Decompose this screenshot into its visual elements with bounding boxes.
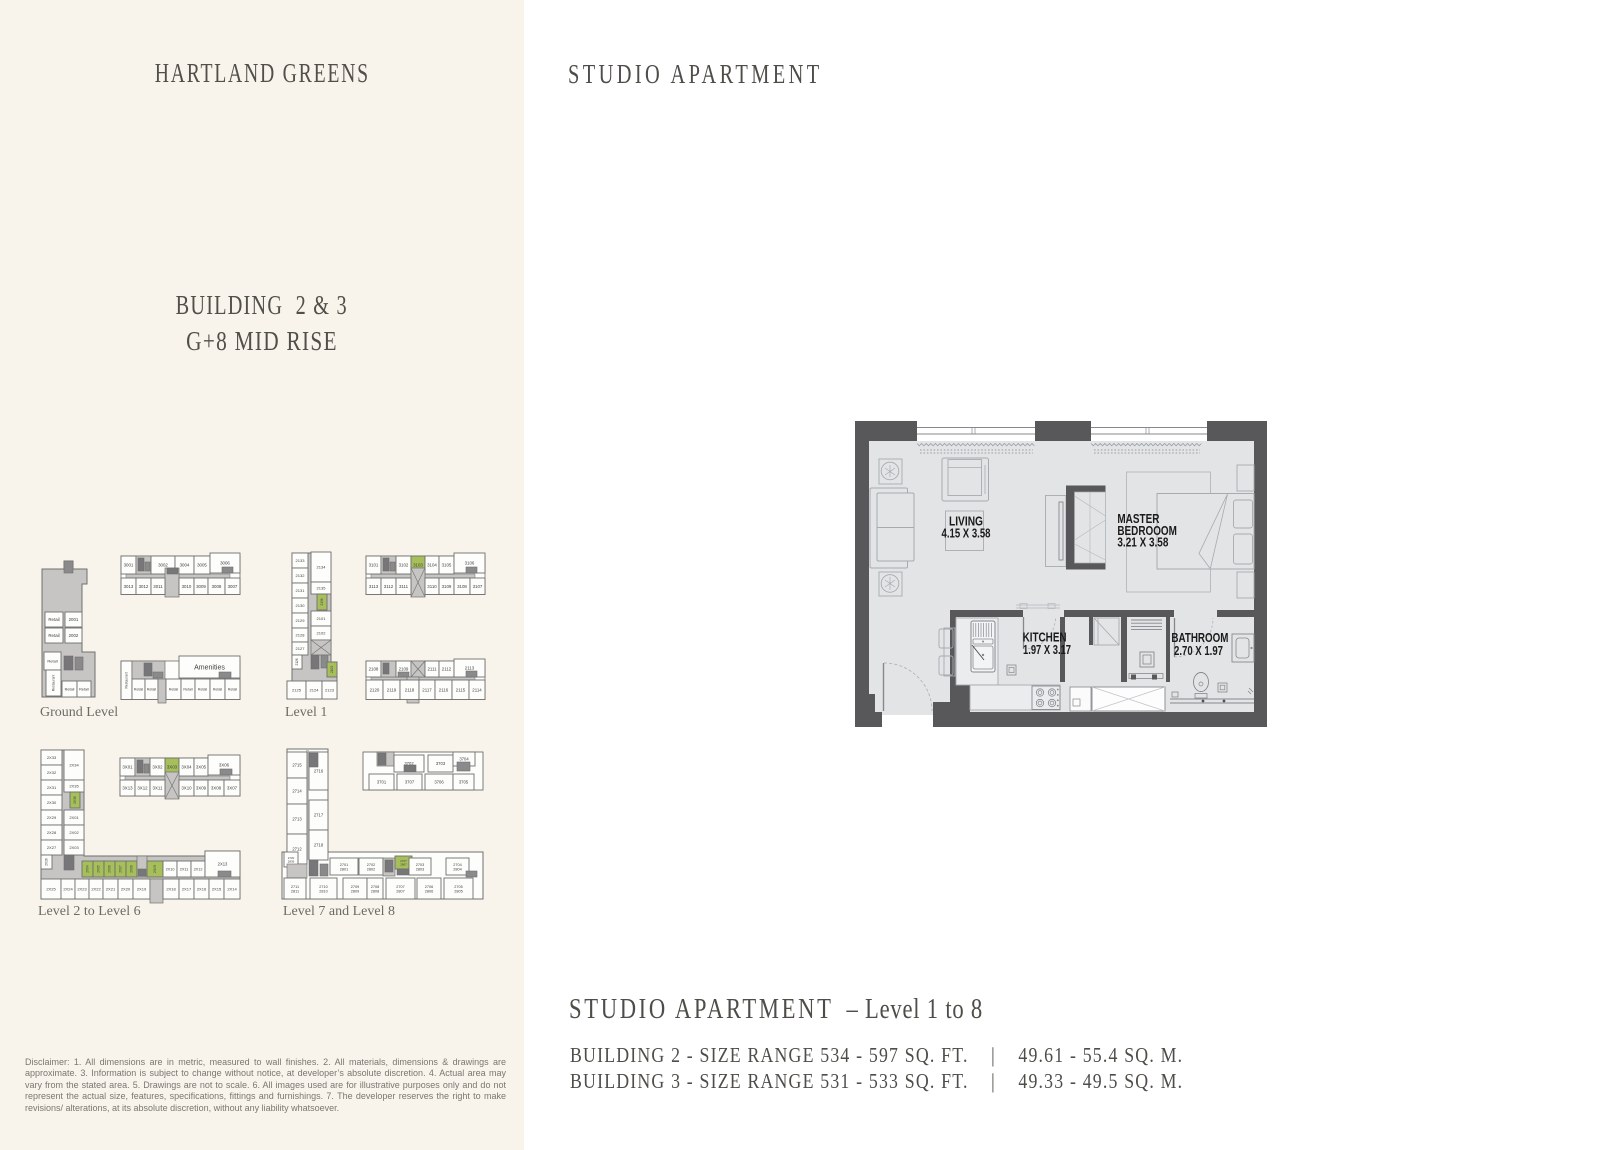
svg-text:2125: 2125 bbox=[292, 687, 302, 692]
svg-text:2120: 2120 bbox=[370, 687, 380, 692]
svg-text:2X36: 2X36 bbox=[73, 796, 77, 804]
svg-text:2X21: 2X21 bbox=[106, 886, 116, 891]
svg-text:2804: 2804 bbox=[453, 867, 461, 871]
svg-text:Retail: Retail bbox=[48, 633, 59, 638]
svg-text:Retail: Retail bbox=[47, 658, 57, 663]
svg-text:3703: 3703 bbox=[436, 761, 446, 766]
svg-text:3113: 3113 bbox=[369, 584, 379, 589]
svg-text:3010: 3010 bbox=[182, 584, 192, 589]
svg-text:2X04: 2X04 bbox=[85, 865, 89, 873]
svg-text:2711: 2711 bbox=[291, 885, 299, 889]
svg-text:Level 7 and Level 8: Level 7 and Level 8 bbox=[283, 904, 395, 919]
svg-text:2X33: 2X33 bbox=[47, 755, 57, 760]
svg-text:2803: 2803 bbox=[416, 867, 424, 871]
svg-text:3007: 3007 bbox=[228, 584, 238, 589]
svg-text:2112: 2112 bbox=[442, 667, 452, 672]
svg-text:Retail: Retail bbox=[147, 688, 156, 692]
svg-text:2X10: 2X10 bbox=[166, 867, 175, 871]
svg-text:2X31: 2X31 bbox=[47, 785, 57, 790]
svg-text:2102: 2102 bbox=[317, 630, 327, 635]
svg-text:3707: 3707 bbox=[405, 780, 415, 785]
svg-text:3X08: 3X08 bbox=[211, 786, 222, 791]
svg-text:2810: 2810 bbox=[319, 889, 327, 893]
svg-text:3103: 3103 bbox=[413, 563, 423, 568]
svg-text:2X29: 2X29 bbox=[47, 815, 57, 820]
svg-text:Ground Level: Ground Level bbox=[40, 705, 118, 720]
svg-text:Restaurant: Restaurant bbox=[124, 672, 128, 689]
svg-text:2X01: 2X01 bbox=[69, 815, 79, 820]
svg-text:2128: 2128 bbox=[296, 632, 306, 637]
svg-text:4.15 X 3.58: 4.15 X 3.58 bbox=[942, 526, 991, 541]
svg-text:2X35: 2X35 bbox=[69, 783, 79, 788]
svg-text:2X12: 2X12 bbox=[194, 867, 203, 871]
svg-text:2101: 2101 bbox=[317, 616, 327, 621]
svg-text:2111: 2111 bbox=[427, 667, 437, 672]
svg-text:2X15: 2X15 bbox=[212, 886, 222, 891]
svg-text:3X09: 3X09 bbox=[196, 786, 207, 791]
svg-text:3005: 3005 bbox=[197, 563, 207, 568]
svg-text:2836: 2836 bbox=[288, 859, 295, 863]
svg-text:2130: 2130 bbox=[296, 603, 306, 608]
svg-text:2716: 2716 bbox=[314, 769, 324, 774]
svg-text:2806: 2806 bbox=[425, 889, 433, 893]
svg-text:2116: 2116 bbox=[439, 687, 449, 692]
svg-text:2X34: 2X34 bbox=[69, 762, 79, 767]
svg-text:3X06: 3X06 bbox=[219, 763, 230, 768]
svg-text:2708: 2708 bbox=[371, 885, 379, 889]
svg-text:3X03: 3X03 bbox=[167, 765, 178, 770]
svg-text:2807: 2807 bbox=[400, 862, 407, 866]
svg-text:3001: 3001 bbox=[124, 563, 134, 568]
svg-text:3701: 3701 bbox=[377, 780, 387, 785]
svg-text:2114: 2114 bbox=[472, 687, 482, 692]
svg-text:3X10: 3X10 bbox=[181, 786, 192, 791]
svg-text:2X14: 2X14 bbox=[227, 886, 237, 891]
svg-text:Retail: Retail bbox=[198, 688, 207, 692]
svg-text:2115: 2115 bbox=[456, 687, 466, 692]
svg-text:2127: 2127 bbox=[296, 646, 306, 651]
svg-text:2X08: 2X08 bbox=[129, 865, 133, 873]
svg-text:2714: 2714 bbox=[292, 789, 302, 794]
svg-text:2715: 2715 bbox=[292, 763, 302, 768]
svg-text:3011: 3011 bbox=[153, 584, 163, 589]
svg-text:3105: 3105 bbox=[442, 563, 452, 568]
svg-text:2113: 2113 bbox=[465, 666, 475, 671]
svg-text:3X12: 3X12 bbox=[137, 786, 148, 791]
svg-text:3012: 3012 bbox=[139, 584, 149, 589]
svg-text:2713: 2713 bbox=[292, 817, 302, 822]
svg-text:2132: 2132 bbox=[296, 573, 306, 578]
svg-text:3706: 3706 bbox=[434, 780, 444, 785]
svg-text:Retail: Retail bbox=[213, 688, 222, 692]
svg-text:2704: 2704 bbox=[453, 863, 461, 867]
svg-text:2108: 2108 bbox=[369, 667, 379, 672]
svg-text:1.97 X 3.17: 1.97 X 3.17 bbox=[1023, 642, 1071, 657]
svg-text:Level 2 to Level 6: Level 2 to Level 6 bbox=[38, 904, 141, 919]
svg-text:2X02: 2X02 bbox=[69, 830, 79, 835]
svg-text:3704: 3704 bbox=[459, 757, 469, 762]
svg-text:3X04: 3X04 bbox=[181, 765, 192, 770]
svg-text:2134: 2134 bbox=[317, 564, 327, 569]
svg-text:3X05: 3X05 bbox=[196, 765, 207, 770]
svg-text:Retail: Retail bbox=[134, 688, 143, 692]
svg-text:2129: 2129 bbox=[296, 618, 306, 623]
svg-text:2118: 2118 bbox=[405, 687, 415, 692]
svg-text:2X20: 2X20 bbox=[121, 886, 131, 891]
svg-text:2X27: 2X27 bbox=[47, 845, 57, 850]
svg-text:2718: 2718 bbox=[314, 843, 324, 848]
svg-text:Level 1: Level 1 bbox=[285, 705, 327, 720]
svg-text:Retail: Retail bbox=[65, 687, 75, 691]
svg-text:2135: 2135 bbox=[317, 585, 327, 590]
svg-text:2X24: 2X24 bbox=[63, 886, 73, 891]
svg-text:2706: 2706 bbox=[425, 885, 433, 889]
svg-text:2X11: 2X11 bbox=[180, 867, 189, 871]
svg-text:2103: 2103 bbox=[330, 666, 334, 673]
svg-text:2X05: 2X05 bbox=[96, 865, 100, 873]
svg-text:2707: 2707 bbox=[396, 885, 404, 889]
svg-text:3004: 3004 bbox=[180, 563, 190, 568]
svg-text:2124: 2124 bbox=[310, 687, 320, 692]
svg-text:2136: 2136 bbox=[320, 598, 324, 605]
svg-text:2701: 2701 bbox=[340, 863, 348, 867]
svg-text:3705: 3705 bbox=[459, 780, 469, 785]
svg-text:2X32: 2X32 bbox=[47, 770, 57, 775]
svg-text:3X13: 3X13 bbox=[122, 786, 133, 791]
svg-text:2X30: 2X30 bbox=[47, 800, 57, 805]
svg-text:3108: 3108 bbox=[457, 584, 467, 589]
svg-text:3106: 3106 bbox=[465, 561, 475, 566]
svg-text:2805: 2805 bbox=[454, 889, 462, 893]
svg-text:3111: 3111 bbox=[399, 584, 409, 589]
svg-text:2X09: 2X09 bbox=[153, 865, 157, 873]
svg-text:3008: 3008 bbox=[212, 584, 222, 589]
svg-text:Retail: Retail bbox=[79, 687, 89, 691]
svg-text:Retail: Retail bbox=[169, 688, 178, 692]
svg-text:2123: 2123 bbox=[325, 687, 335, 692]
svg-text:Retail: Retail bbox=[183, 688, 192, 692]
svg-text:2809: 2809 bbox=[351, 889, 359, 893]
svg-text:2710: 2710 bbox=[319, 885, 327, 889]
svg-text:2X13: 2X13 bbox=[218, 862, 228, 867]
svg-text:2001: 2001 bbox=[69, 617, 79, 622]
svg-text:2702: 2702 bbox=[367, 863, 375, 867]
svg-text:2126: 2126 bbox=[295, 658, 299, 665]
svg-text:2802: 2802 bbox=[367, 867, 375, 871]
svg-text:2X03: 2X03 bbox=[69, 845, 79, 850]
svg-text:2X17: 2X17 bbox=[182, 886, 192, 891]
svg-text:3X02: 3X02 bbox=[152, 765, 163, 770]
svg-text:2703: 2703 bbox=[416, 863, 424, 867]
svg-text:2X16: 2X16 bbox=[197, 886, 207, 891]
svg-text:2811: 2811 bbox=[291, 889, 299, 893]
svg-text:3110: 3110 bbox=[427, 584, 437, 589]
svg-text:2712: 2712 bbox=[292, 847, 302, 852]
svg-text:3101: 3101 bbox=[369, 563, 379, 568]
svg-text:2X28: 2X28 bbox=[47, 830, 57, 835]
svg-text:2X26: 2X26 bbox=[44, 858, 48, 866]
svg-text:2807: 2807 bbox=[396, 889, 404, 893]
svg-text:2119: 2119 bbox=[387, 687, 397, 692]
svg-text:2717: 2717 bbox=[314, 813, 324, 818]
svg-text:3X07: 3X07 bbox=[227, 786, 238, 791]
svg-text:2X22: 2X22 bbox=[91, 886, 101, 891]
svg-text:3013: 3013 bbox=[124, 584, 134, 589]
svg-text:Amenities: Amenities bbox=[194, 665, 225, 672]
svg-text:3104: 3104 bbox=[427, 563, 437, 568]
svg-text:2801: 2801 bbox=[340, 867, 348, 871]
svg-text:2X06: 2X06 bbox=[107, 865, 111, 873]
svg-text:2X19: 2X19 bbox=[137, 886, 147, 891]
svg-text:3X11: 3X11 bbox=[153, 786, 163, 791]
svg-text:2109: 2109 bbox=[399, 667, 409, 672]
svg-text:2002: 2002 bbox=[69, 633, 79, 638]
svg-text:2117: 2117 bbox=[422, 687, 432, 692]
svg-text:Retail: Retail bbox=[228, 688, 237, 692]
svg-text:3002: 3002 bbox=[158, 563, 168, 568]
svg-text:2.70 X 1.97: 2.70 X 1.97 bbox=[1174, 643, 1223, 658]
svg-text:3107: 3107 bbox=[473, 584, 483, 589]
svg-text:3009: 3009 bbox=[196, 584, 206, 589]
svg-text:2808: 2808 bbox=[371, 889, 379, 893]
svg-text:2X23: 2X23 bbox=[77, 886, 87, 891]
svg-text:Retail: Retail bbox=[48, 617, 59, 622]
svg-text:2705: 2705 bbox=[454, 885, 462, 889]
svg-text:2131: 2131 bbox=[296, 588, 306, 593]
svg-text:3102: 3102 bbox=[399, 563, 409, 568]
svg-text:3X01: 3X01 bbox=[122, 765, 133, 770]
svg-text:2X25: 2X25 bbox=[46, 886, 56, 891]
svg-text:2709: 2709 bbox=[351, 885, 359, 889]
svg-text:Restaurant: Restaurant bbox=[51, 675, 55, 692]
svg-text:2X07: 2X07 bbox=[118, 865, 122, 873]
svg-text:3.21 X 3.58: 3.21 X 3.58 bbox=[1117, 535, 1168, 550]
svg-text:2X18: 2X18 bbox=[166, 886, 176, 891]
svg-text:3109: 3109 bbox=[442, 584, 452, 589]
svg-text:2133: 2133 bbox=[296, 558, 306, 563]
svg-text:3006: 3006 bbox=[220, 561, 230, 566]
svg-text:3112: 3112 bbox=[384, 584, 394, 589]
